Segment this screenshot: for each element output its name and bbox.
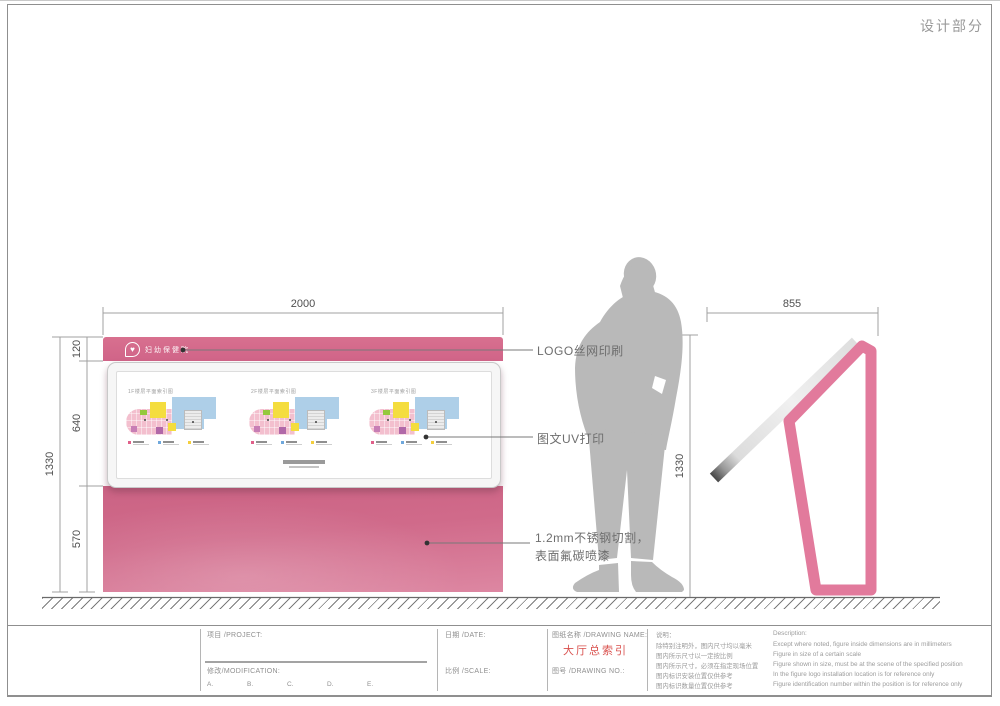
notes-cn-line: 图内标识安装位置仅供参考 (656, 671, 733, 680)
floor-plan-3: 3F楼层平面索引图 (369, 388, 461, 450)
plan-zone-green (263, 410, 270, 415)
plan-legend (251, 441, 332, 445)
plan-zone-purple (131, 426, 137, 432)
sheet-top-rule (0, 0, 1000, 1)
dim-side-depth: 855 (783, 298, 801, 310)
notes-en-line: In the figure logo installation location… (773, 671, 934, 678)
notes-en-line: Figure shown in size, must be at the sce… (773, 661, 963, 668)
revision-mark-a: A. (207, 681, 213, 688)
dim-front-panel-height: 640 (71, 414, 83, 432)
revision-mark-e: E. (367, 681, 373, 688)
title-block-divider (547, 629, 548, 691)
revision-mark-d: D. (327, 681, 334, 688)
floor-plan-map (369, 397, 461, 435)
plan-zone-purple (374, 426, 380, 432)
floor-plan-2: 2F楼层平面索引图 (249, 388, 341, 450)
plan-zone-purple (399, 427, 406, 434)
plan-stairs (307, 410, 325, 430)
plan-zone-yellow (291, 423, 299, 431)
notes-cn-line: 图内所示尺寸，必须在指定现场位置 (656, 661, 758, 670)
scale-label: 比例 /SCALE: (445, 666, 491, 676)
revision-mark-c: C. (287, 681, 294, 688)
date-label: 日期 /DATE: (445, 630, 486, 640)
sign-header-band: ♥ 妇幼保健院 (103, 337, 503, 361)
sign-display-bezel: 1F楼层平面索引图 (107, 362, 501, 488)
notes-en-line: Figure in size of a certain scale (773, 651, 861, 658)
plan-marker-dot (192, 421, 194, 423)
dim-front-header-height: 120 (71, 340, 83, 358)
sign-display-face: 1F楼层平面索引图 (116, 371, 492, 479)
annotation-logo-print: LOGO丝网印刷 (537, 342, 624, 359)
annotation-steel-line1: 1.2mm不锈钢切割， (535, 529, 649, 546)
floor-plan-map (249, 397, 341, 435)
sign-base-panel (103, 486, 503, 592)
sign-front-elevation: ♥ 妇幼保健院 1F楼层平面索引图 (103, 337, 503, 592)
project-label: 项目 /PROJECT: (207, 630, 262, 640)
dim-front-base-height: 570 (71, 530, 83, 548)
floor-plan-title: 3F楼层平面索引图 (371, 388, 416, 395)
plan-stairs (184, 410, 202, 430)
annotation-steel-line2: 表面氟碳喷漆 (535, 547, 610, 564)
notes-cn-line: 除特别注明外，图内尺寸均以毫米 (656, 641, 752, 650)
dim-side-height: 1330 (674, 454, 686, 478)
drawing-name-label: 图纸名称 /DRAWING NAME: (552, 630, 647, 640)
hospital-logo-icon: ♥ (125, 342, 140, 357)
plan-marker-dot (267, 419, 269, 421)
notes-cn-title: 说明： (656, 630, 675, 639)
floor-plan-title: 1F楼层平面索引图 (128, 388, 173, 395)
plan-marker-dot (289, 419, 291, 421)
sheet-section-title: 设计部分 (920, 16, 984, 36)
plan-zone-green (383, 410, 390, 415)
plan-zone-yellow (411, 423, 419, 431)
floor-plan-1: 1F楼层平面索引图 (126, 388, 218, 450)
floor-plan-map (126, 397, 218, 435)
title-block-divider (200, 629, 201, 691)
notes-en-line: Figure identification number within the … (773, 681, 962, 688)
annotation-uv-print: 图文UV打印 (537, 430, 605, 447)
dim-front-total-height: 1330 (44, 452, 56, 476)
project-field-rule (205, 661, 427, 663)
title-block-top-rule (7, 625, 991, 626)
plan-marker-dot (144, 419, 146, 421)
title-block-divider (437, 629, 438, 691)
plan-marker-dot (409, 419, 411, 421)
drawing-name-value: 大厅总索引 (563, 642, 628, 658)
plan-marker-dot (435, 421, 437, 423)
notes-cn-line: 图内所示尺寸以一定按比例 (656, 651, 733, 660)
plan-marker-dot (166, 419, 168, 421)
notes-cn-line: 图内标识数量位置仅供参考 (656, 681, 733, 690)
hospital-logo-text: 妇幼保健院 (145, 345, 190, 355)
plan-zone-yellow (168, 423, 176, 431)
plan-zone-yellow (273, 402, 289, 418)
plan-zone-purple (279, 427, 286, 434)
dim-front-width: 2000 (291, 298, 315, 310)
plan-legend (128, 441, 209, 445)
plan-zone-green (140, 410, 147, 415)
plan-marker-dot (315, 421, 317, 423)
floor-plan-title: 2F楼层平面索引图 (251, 388, 296, 395)
revision-mark-b: B. (247, 681, 253, 688)
panel-footer-note (283, 460, 325, 468)
plan-zone-yellow (393, 402, 409, 418)
notes-en-title: Description: (773, 630, 807, 637)
plan-stairs (427, 410, 445, 430)
plan-legend (371, 441, 452, 445)
notes-en-line: Except where noted, figure inside dimens… (773, 641, 952, 648)
drawing-sheet: 设计部分 ♥ 妇幼保健院 1F楼层平面索引图 (0, 0, 1000, 706)
ground-hatch (42, 598, 940, 609)
plan-zone-yellow (150, 402, 166, 418)
modification-label: 修改/MODIFICATION: (207, 666, 280, 676)
plan-zone-purple (254, 426, 260, 432)
plan-marker-dot (387, 419, 389, 421)
plan-zone-purple (156, 427, 163, 434)
drawing-no-label: 图号 /DRAWING NO.: (552, 666, 625, 676)
